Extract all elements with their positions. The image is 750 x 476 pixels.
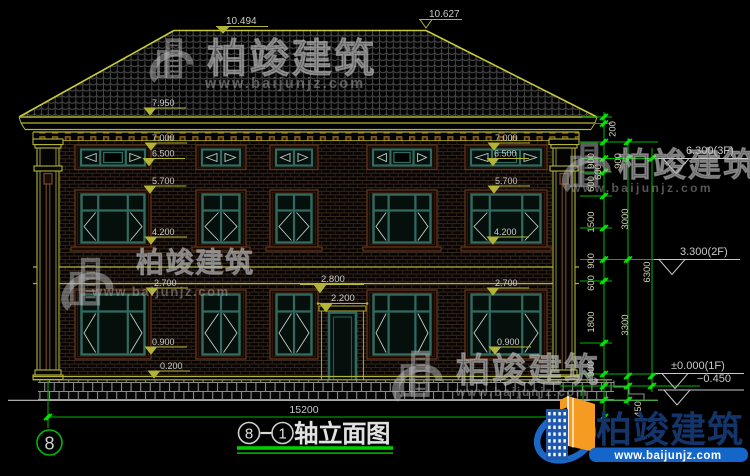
svg-text:柏竣建筑: 柏竣建筑	[596, 409, 744, 450]
svg-text:www.baijunjz.com: www.baijunjz.com	[613, 450, 721, 462]
